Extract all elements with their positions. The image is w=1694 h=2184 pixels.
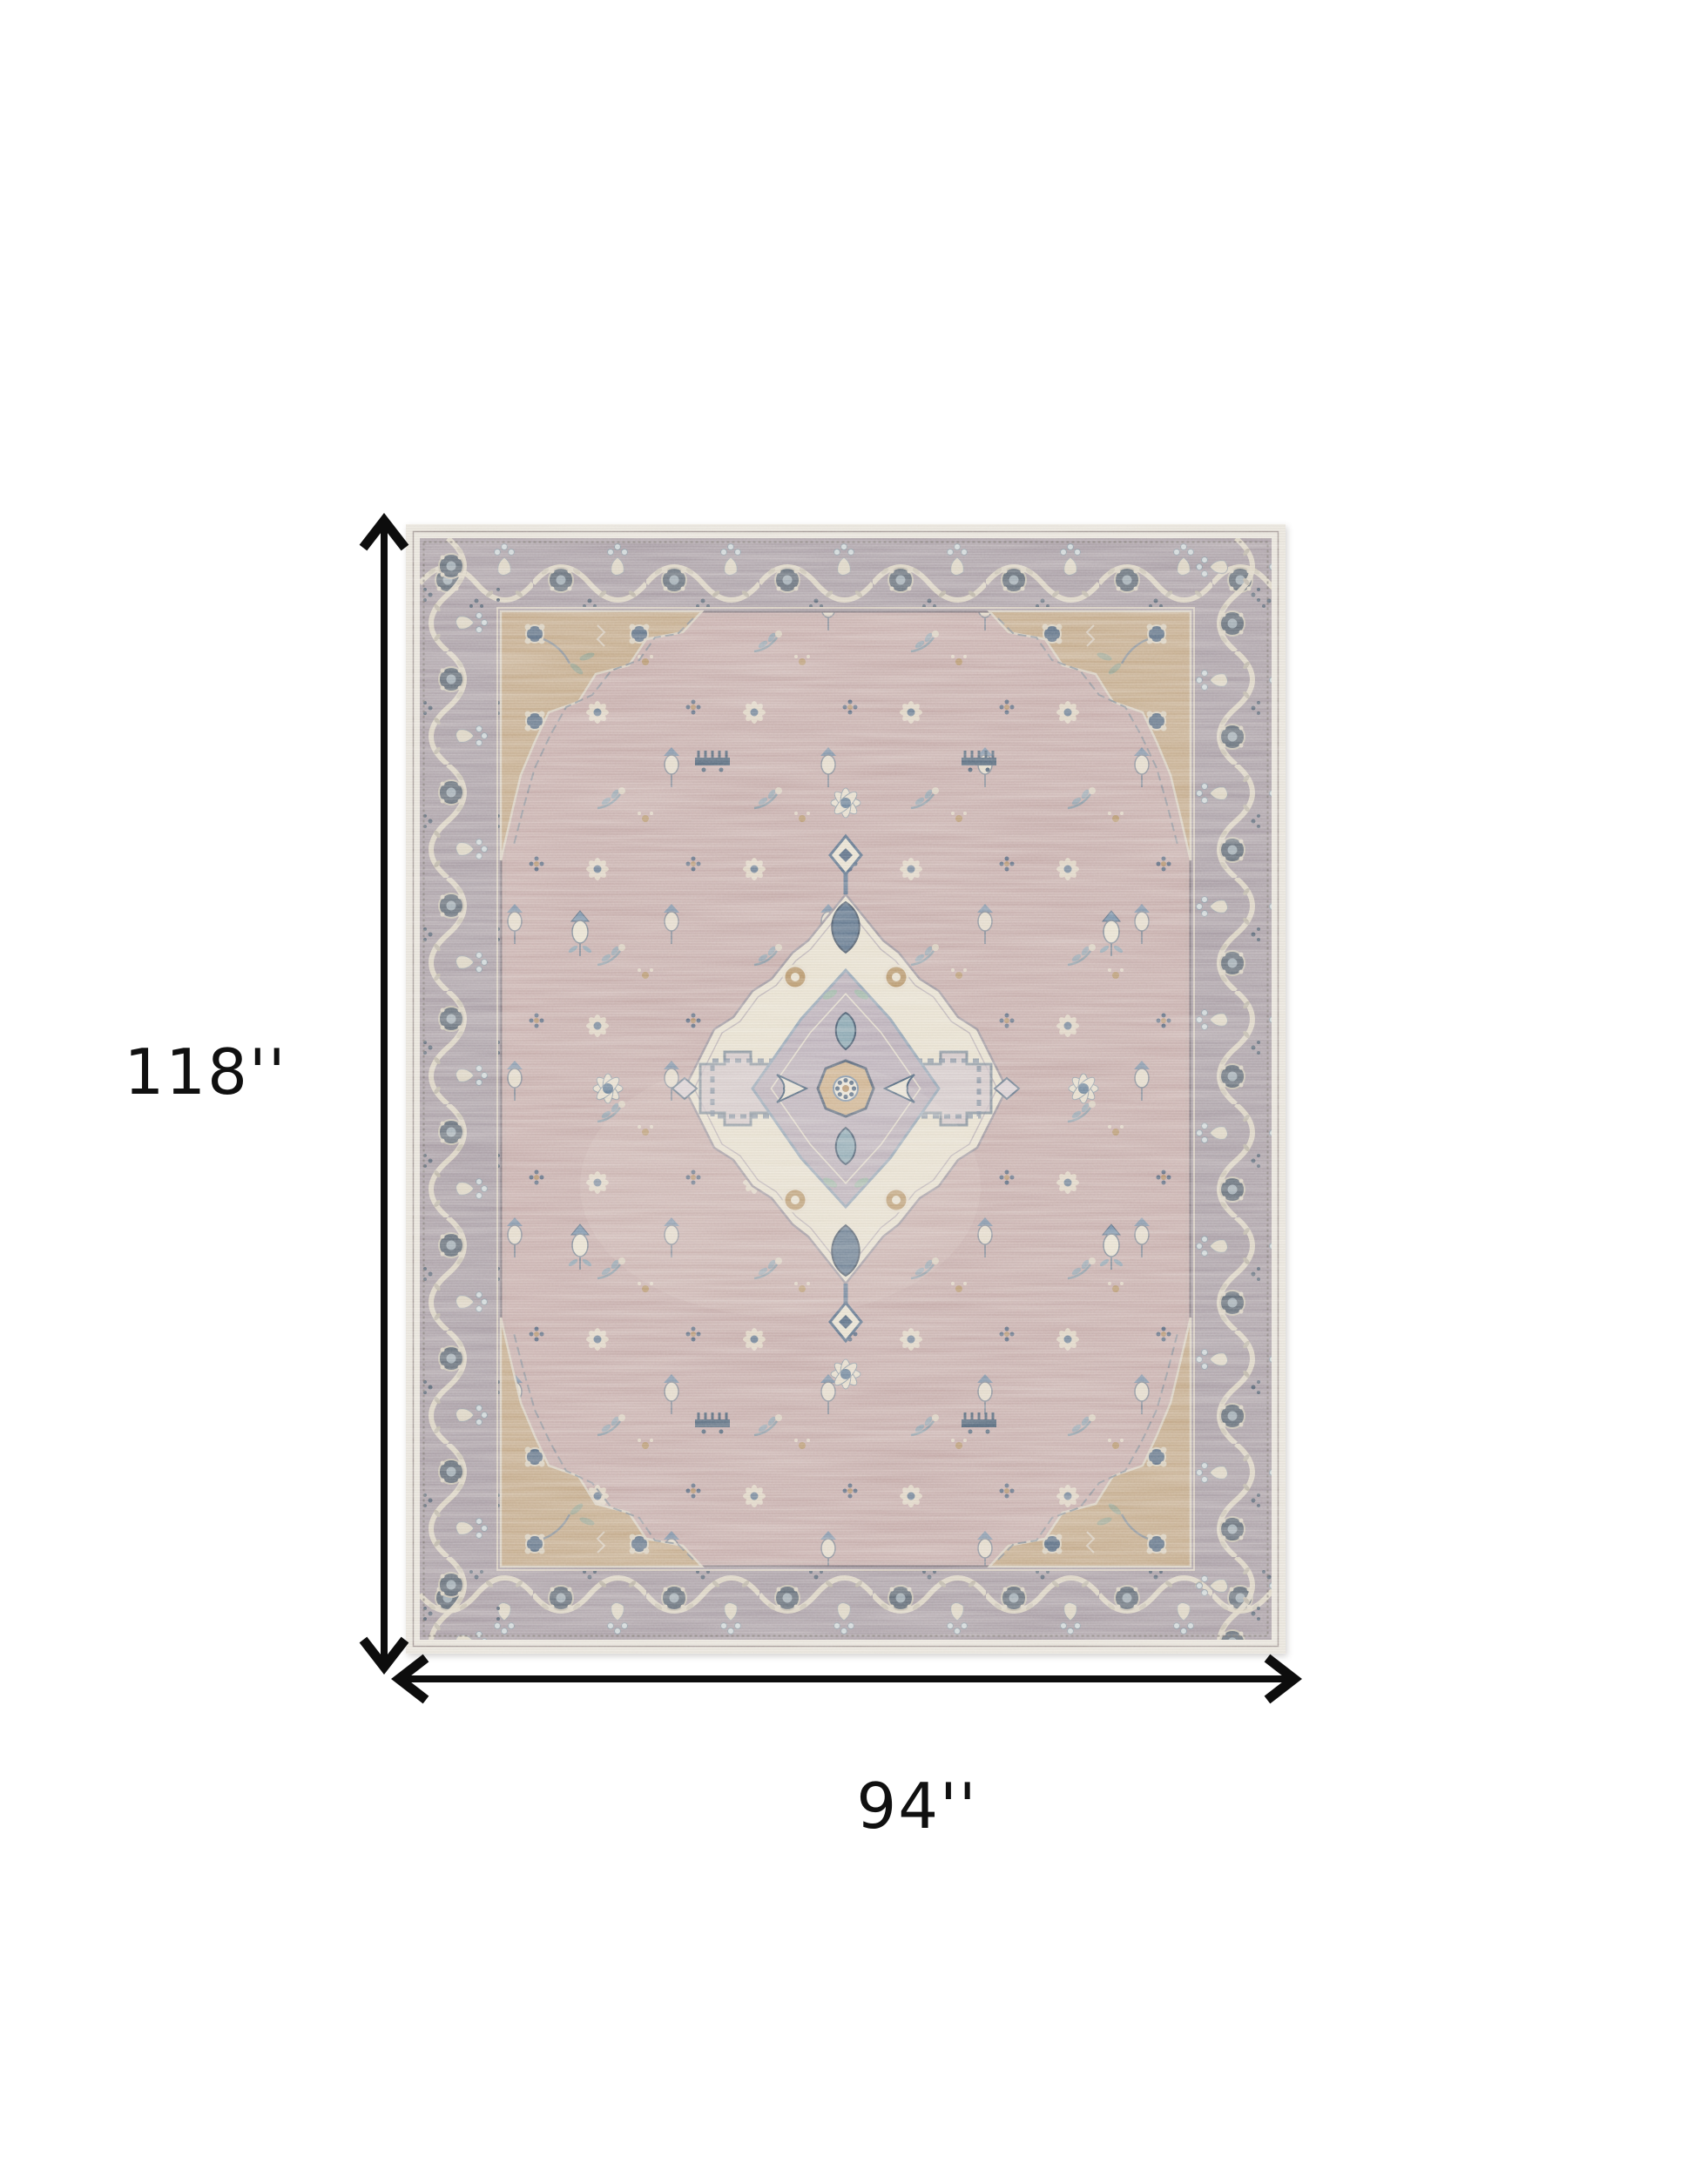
product-dimension-diagram: 118'' 94'' bbox=[0, 0, 1694, 2184]
height-dimension-label: 118'' bbox=[124, 1035, 287, 1109]
rug-texture-overlay bbox=[406, 524, 1286, 1654]
width-dimension-label: 94'' bbox=[856, 1769, 977, 1843]
rug-image bbox=[406, 524, 1286, 1654]
width-dimension-arrow bbox=[390, 1649, 1303, 1709]
rug-illustration bbox=[406, 524, 1286, 1654]
height-dimension-arrow bbox=[352, 512, 418, 1675]
